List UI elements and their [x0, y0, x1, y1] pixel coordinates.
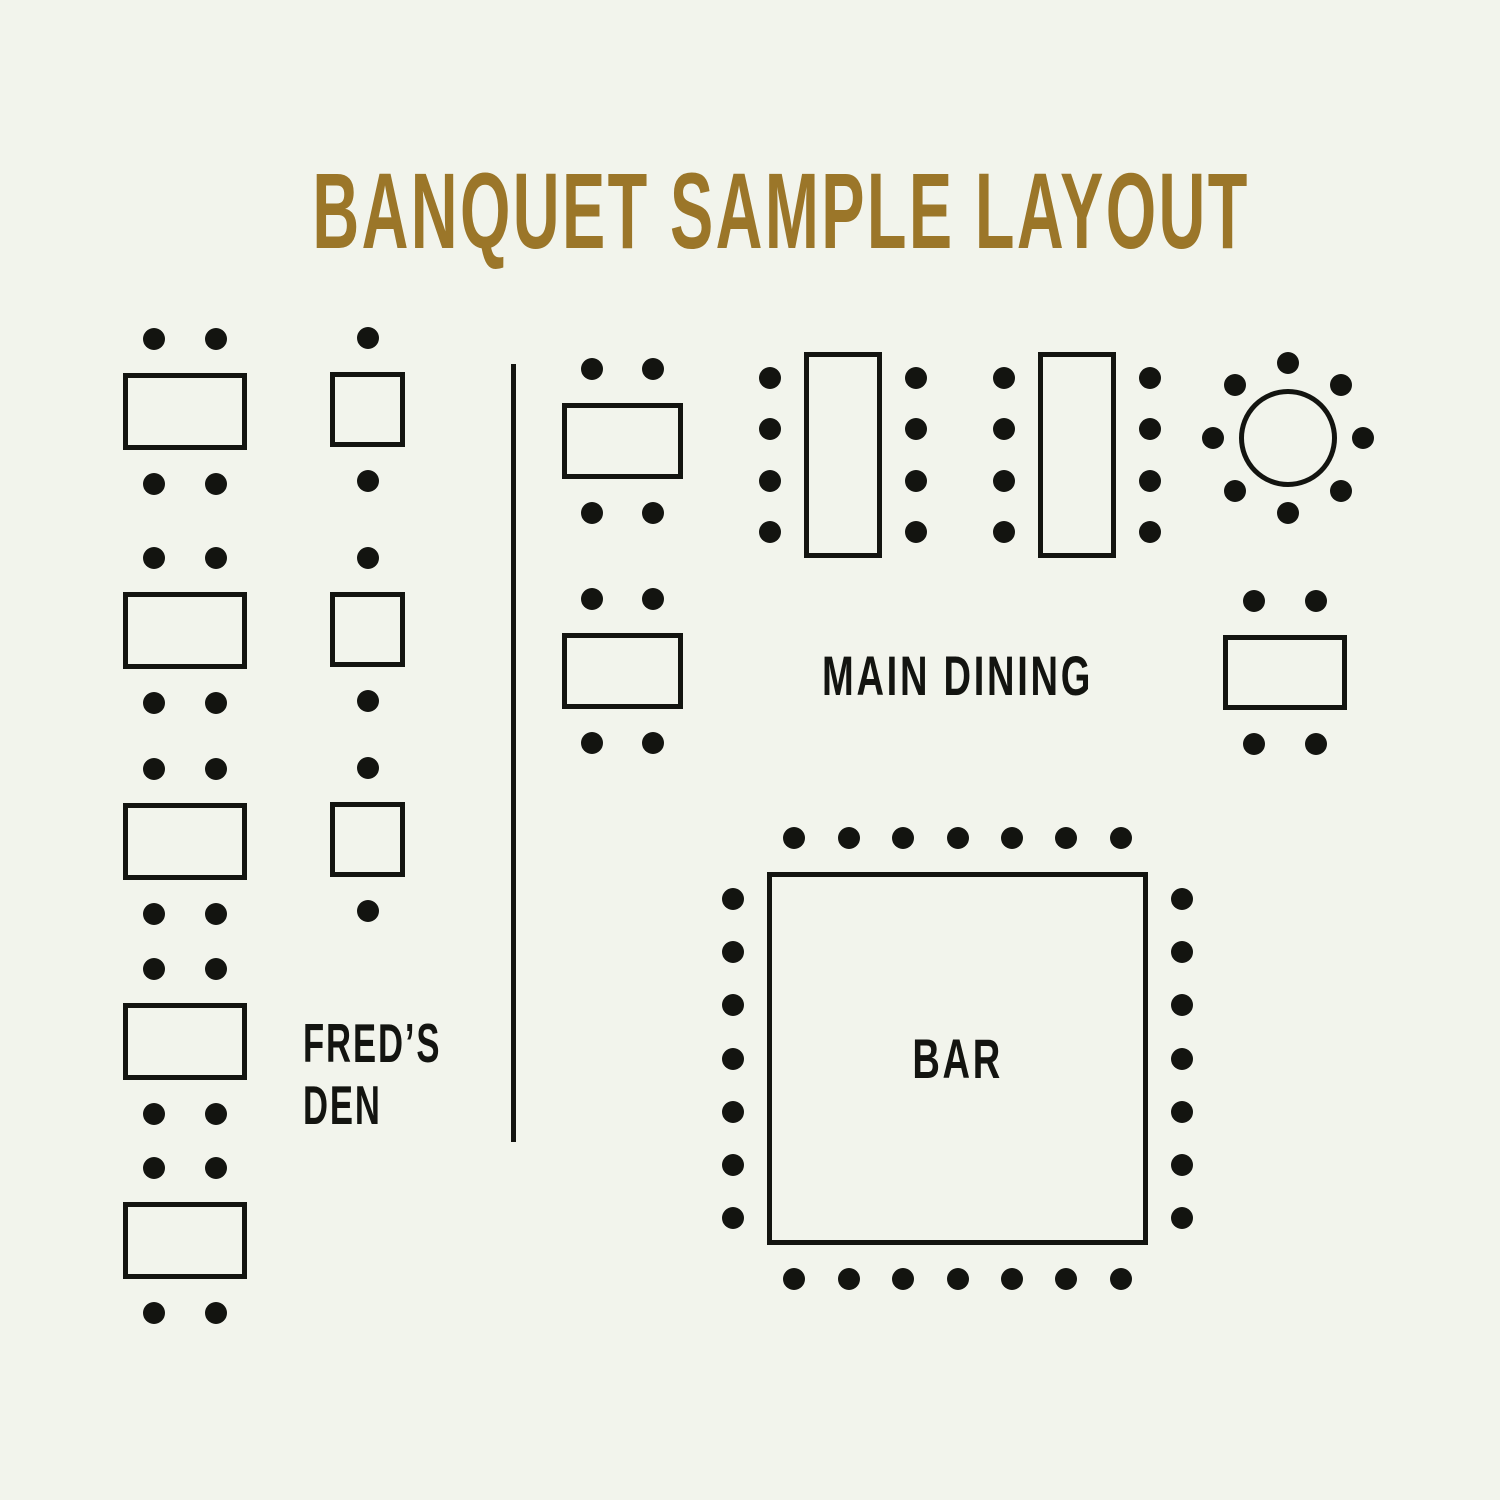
chair-dot-bar-counter: [1171, 1101, 1193, 1123]
chair-dot-bar-counter: [722, 888, 744, 910]
chair-dot-main-dining-3: [1305, 590, 1327, 612]
chair-dot-freds-den-5: [205, 1302, 227, 1324]
chair-dot-freds-den-2: [143, 547, 165, 569]
chair-dot-bar-counter: [1001, 1268, 1023, 1290]
chair-dot-main-dining-long-2: [993, 418, 1015, 440]
chair-dot-freds-den-sq-3: [357, 757, 379, 779]
chair-dot-bar-counter: [722, 941, 744, 963]
page-title: BANQUET SAMPLE LAYOUT: [0, 157, 1500, 265]
chair-dot-freds-den-sq-2: [357, 547, 379, 569]
chair-dot-bar-counter: [1171, 888, 1193, 910]
chair-dot-freds-den-3: [143, 758, 165, 780]
chair-dot-main-dining-1: [642, 358, 664, 380]
chair-dot-freds-den-4: [205, 958, 227, 980]
chair-dot-main-dining-3: [1243, 590, 1265, 612]
freds-den-label-line1: FRED’S: [303, 1012, 441, 1074]
chair-dot-freds-den-sq-1: [357, 470, 379, 492]
chair-dot-main-dining-round: [1330, 480, 1352, 502]
main-dining-label: MAIN DINING: [822, 648, 1221, 704]
chair-dot-bar-counter: [783, 1268, 805, 1290]
chair-dot-freds-den-3: [205, 758, 227, 780]
chair-dot-main-dining-2: [642, 732, 664, 754]
table-freds-den-5: [123, 1202, 247, 1279]
chair-dot-main-dining-round: [1330, 374, 1352, 396]
table-freds-den-2: [123, 592, 247, 669]
chair-dot-main-dining-round: [1277, 502, 1299, 524]
chair-dot-main-dining-1: [581, 358, 603, 380]
table-freds-den-sq-1: [330, 372, 405, 447]
chair-dot-freds-den-1: [143, 473, 165, 495]
chair-dot-freds-den-4: [143, 1103, 165, 1125]
chair-dot-main-dining-long-1: [905, 521, 927, 543]
chair-dot-bar-counter: [722, 1048, 744, 1070]
chair-dot-bar-counter: [1171, 941, 1193, 963]
chair-dot-bar-counter: [1110, 1268, 1132, 1290]
chair-dot-main-dining-3: [1243, 733, 1265, 755]
chair-dot-bar-counter: [1171, 1154, 1193, 1176]
chair-dot-main-dining-1: [642, 502, 664, 524]
chair-dot-freds-den-1: [143, 328, 165, 350]
chair-dot-main-dining-long-2: [993, 470, 1015, 492]
chair-dot-main-dining-long-2: [993, 367, 1015, 389]
table-main-dining-round: [1239, 389, 1337, 487]
table-main-dining-1: [562, 403, 683, 479]
chair-dot-bar-counter: [1171, 1048, 1193, 1070]
chair-dot-main-dining-long-1: [905, 367, 927, 389]
chair-dot-main-dining-round: [1224, 374, 1246, 396]
chair-dot-main-dining-2: [581, 588, 603, 610]
chair-dot-freds-den-5: [143, 1302, 165, 1324]
chair-dot-main-dining-long-1: [759, 367, 781, 389]
chair-dot-main-dining-long-1: [759, 470, 781, 492]
chair-dot-freds-den-3: [205, 903, 227, 925]
chair-dot-bar-counter: [1171, 1207, 1193, 1229]
chair-dot-main-dining-long-2: [993, 521, 1015, 543]
chair-dot-freds-den-sq-1: [357, 327, 379, 349]
chair-dot-freds-den-sq-3: [357, 900, 379, 922]
chair-dot-freds-den-1: [205, 473, 227, 495]
chair-dot-freds-den-1: [205, 328, 227, 350]
chair-dot-bar-counter: [722, 994, 744, 1016]
chair-dot-freds-den-5: [143, 1157, 165, 1179]
chair-dot-main-dining-2: [581, 732, 603, 754]
chair-dot-freds-den-2: [143, 692, 165, 714]
chair-dot-freds-den-sq-2: [357, 690, 379, 712]
chair-dot-main-dining-long-2: [1139, 470, 1161, 492]
chair-dot-freds-den-5: [205, 1157, 227, 1179]
chair-dot-main-dining-long-2: [1139, 418, 1161, 440]
main-dining-label-text: MAIN DINING: [822, 648, 1093, 704]
table-main-dining-3: [1223, 635, 1347, 710]
chair-dot-freds-den-2: [205, 692, 227, 714]
chair-dot-bar-counter: [947, 827, 969, 849]
table-freds-den-1: [123, 373, 247, 450]
chair-dot-bar-counter: [1110, 827, 1132, 849]
chair-dot-main-dining-long-2: [1139, 521, 1161, 543]
chair-dot-bar-counter: [892, 1268, 914, 1290]
table-freds-den-4: [123, 1003, 247, 1080]
table-freds-den-sq-3: [330, 802, 405, 877]
chair-dot-bar-counter: [1171, 994, 1193, 1016]
chair-dot-main-dining-3: [1305, 733, 1327, 755]
chair-dot-freds-den-4: [205, 1103, 227, 1125]
chair-dot-main-dining-1: [581, 502, 603, 524]
chair-dot-bar-counter: [722, 1154, 744, 1176]
chair-dot-main-dining-round: [1202, 427, 1224, 449]
page-title-text: BANQUET SAMPLE LAYOUT: [312, 157, 1249, 265]
bar-label: BAR: [767, 872, 1148, 1245]
table-freds-den-sq-2: [330, 592, 405, 667]
chair-dot-freds-den-2: [205, 547, 227, 569]
chair-dot-bar-counter: [947, 1268, 969, 1290]
chair-dot-bar-counter: [1055, 827, 1077, 849]
chair-dot-bar-counter: [722, 1207, 744, 1229]
chair-dot-freds-den-4: [143, 958, 165, 980]
chair-dot-bar-counter: [838, 1268, 860, 1290]
chair-dot-main-dining-round: [1224, 480, 1246, 502]
freds-den-label-line2: DEN: [303, 1074, 441, 1136]
table-freds-den-3: [123, 803, 247, 880]
chair-dot-freds-den-3: [143, 903, 165, 925]
chair-dot-main-dining-round: [1352, 427, 1374, 449]
poster: BANQUET SAMPLE LAYOUT FRED’S DEN MAIN DI…: [0, 0, 1500, 1500]
chair-dot-main-dining-long-1: [759, 418, 781, 440]
chair-dot-bar-counter: [1055, 1268, 1077, 1290]
chair-dot-main-dining-round: [1277, 352, 1299, 374]
table-main-dining-long-2: [1038, 352, 1116, 558]
banquet-layout-poster: { "title": { "text": "BANQUET SAMPLE LAY…: [0, 0, 1500, 1500]
chair-dot-main-dining-long-2: [1139, 367, 1161, 389]
chair-dot-bar-counter: [892, 827, 914, 849]
chair-dot-bar-counter: [1001, 827, 1023, 849]
chair-dot-bar-counter: [783, 827, 805, 849]
chair-dot-bar-counter: [838, 827, 860, 849]
bar-label-text: BAR: [912, 1031, 1003, 1087]
chair-dot-main-dining-long-1: [905, 418, 927, 440]
table-main-dining-2: [562, 633, 683, 709]
chair-dot-bar-counter: [722, 1101, 744, 1123]
table-main-dining-long-1: [804, 352, 882, 558]
chair-dot-main-dining-2: [642, 588, 664, 610]
chair-dot-main-dining-long-1: [759, 521, 781, 543]
chair-dot-main-dining-long-1: [905, 470, 927, 492]
freds-den-label: FRED’S DEN: [303, 1012, 523, 1136]
